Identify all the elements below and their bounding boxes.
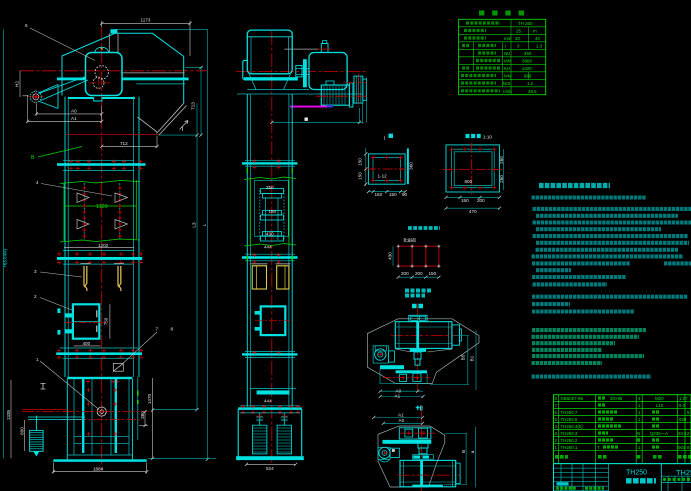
svg-text:1335: 1335 [6, 409, 11, 420]
svg-text:1: 1 [36, 357, 39, 362]
svg-text:25: 25 [516, 29, 521, 34]
svg-text:6: 6 [25, 23, 28, 28]
svg-text:A0: A0 [71, 109, 77, 114]
svg-text:TH 250: TH 250 [518, 21, 533, 26]
svg-text:430: 430 [266, 232, 274, 237]
svg-text:2: 2 [34, 294, 37, 299]
svg-text:B1: B1 [470, 355, 475, 361]
svg-text:1.2: 1.2 [527, 81, 534, 86]
svg-text:200: 200 [415, 271, 423, 276]
svg-text:A1: A1 [71, 116, 77, 121]
svg-text:3868: 3868 [522, 59, 532, 64]
svg-text:TH250.4(5): TH250.4(5) [561, 424, 584, 429]
svg-text:1:10: 1:10 [483, 135, 492, 140]
svg-text:750: 750 [104, 317, 109, 325]
svg-text:H(8.64M): H(8.64M) [3, 248, 8, 267]
svg-text:150: 150 [389, 192, 397, 197]
svg-text:L3: L3 [192, 222, 197, 228]
svg-text:1-12: 1-12 [378, 174, 388, 179]
svg-text:150: 150 [461, 198, 469, 203]
svg-text:M20: M20 [655, 396, 664, 401]
svg-text:I: I [505, 44, 506, 49]
svg-text:TH250.3: TH250.3 [561, 431, 578, 436]
svg-text:003: 003 [678, 445, 686, 450]
svg-text:150: 150 [358, 172, 363, 180]
svg-text:A1: A1 [395, 394, 401, 399]
svg-text:TH250.6: TH250.6 [561, 417, 578, 422]
svg-text:A0: A0 [399, 418, 405, 423]
svg-text:1202: 1202 [98, 243, 109, 248]
svg-text:20.6: 20.6 [678, 431, 687, 436]
svg-text:B5: B5 [461, 354, 466, 360]
svg-text:20×85: 20×85 [610, 396, 623, 401]
svg-text:A0: A0 [396, 388, 402, 393]
svg-text:TH250.7: TH250.7 [561, 410, 578, 415]
svg-text:430: 430 [388, 252, 393, 260]
svg-text:GB5027-86: GB5027-86 [561, 396, 584, 401]
svg-text:150: 150 [358, 158, 363, 166]
svg-text:1173: 1173 [141, 18, 151, 23]
svg-text:N: N [637, 431, 640, 436]
svg-text:TH25: TH25 [676, 468, 691, 477]
svg-text:444: 444 [264, 245, 272, 250]
svg-text:Q235—A: Q235—A [650, 431, 668, 436]
svg-text:H2: H2 [15, 81, 20, 87]
svg-text:1.3: 1.3 [536, 44, 543, 49]
svg-text:800: 800 [20, 427, 25, 435]
svg-text:a: a [470, 450, 475, 453]
svg-text:260: 260 [499, 175, 504, 183]
svg-text:470: 470 [469, 209, 477, 214]
svg-text:838: 838 [679, 417, 687, 422]
svg-text:150: 150 [429, 271, 437, 276]
svg-text:NU: NU [504, 51, 510, 56]
svg-text:600: 600 [465, 179, 473, 184]
svg-text:B: B [31, 155, 35, 161]
svg-text:m: m [533, 29, 537, 34]
svg-text:7: 7 [156, 327, 159, 332]
svg-text:30: 30 [515, 36, 520, 41]
svg-text:1.07: 1.07 [679, 396, 688, 401]
svg-text:1470: 1470 [147, 393, 152, 404]
svg-text:200: 200 [401, 271, 409, 276]
svg-text:4: 4 [36, 180, 39, 185]
svg-text:888: 888 [524, 74, 532, 79]
svg-text:1884: 1884 [93, 467, 104, 472]
svg-text:T: T [597, 445, 600, 450]
svg-text:524: 524 [266, 466, 274, 471]
svg-text:400: 400 [83, 341, 91, 346]
svg-text:KH: KH [504, 66, 510, 71]
svg-text:250: 250 [266, 185, 274, 190]
svg-text:r/mb: r/mb [503, 89, 512, 94]
svg-text:L10: L10 [656, 403, 664, 408]
svg-text:8: 8 [171, 327, 174, 332]
svg-text:MN: MN [504, 74, 511, 79]
svg-text:A1: A1 [398, 412, 404, 417]
svg-text:TH250.1: TH250.1 [561, 445, 578, 450]
svg-text:9.0: 9.0 [679, 403, 686, 408]
svg-text:MN: MN [504, 59, 511, 64]
svg-text:260: 260 [499, 156, 504, 164]
svg-text:TH250.2: TH250.2 [561, 438, 578, 443]
svg-text:1120: 1120 [96, 204, 108, 210]
svg-text:3: 3 [34, 269, 37, 274]
svg-text:40: 40 [535, 36, 540, 41]
svg-text:8-φ18: 8-φ18 [404, 237, 417, 242]
svg-text:180: 180 [269, 209, 277, 214]
svg-text:713: 713 [191, 102, 196, 110]
svg-text:90: 90 [402, 192, 408, 197]
svg-text:B: B [461, 450, 466, 453]
svg-text:444: 444 [264, 399, 272, 404]
svg-text:TH250: TH250 [626, 470, 647, 477]
svg-text:L: L [202, 223, 207, 226]
svg-text:mm: mm [504, 36, 512, 41]
svg-text:450: 450 [524, 51, 532, 56]
svg-text:48.5: 48.5 [528, 89, 537, 94]
svg-text:360: 360 [409, 162, 414, 170]
svg-text:I: I [384, 136, 385, 142]
svg-text:712: 712 [120, 141, 128, 146]
svg-text:N/S: N/S [503, 81, 510, 86]
svg-text:150: 150 [375, 192, 383, 197]
svg-text:200: 200 [477, 198, 485, 203]
svg-text:≥320: ≥320 [522, 66, 532, 71]
